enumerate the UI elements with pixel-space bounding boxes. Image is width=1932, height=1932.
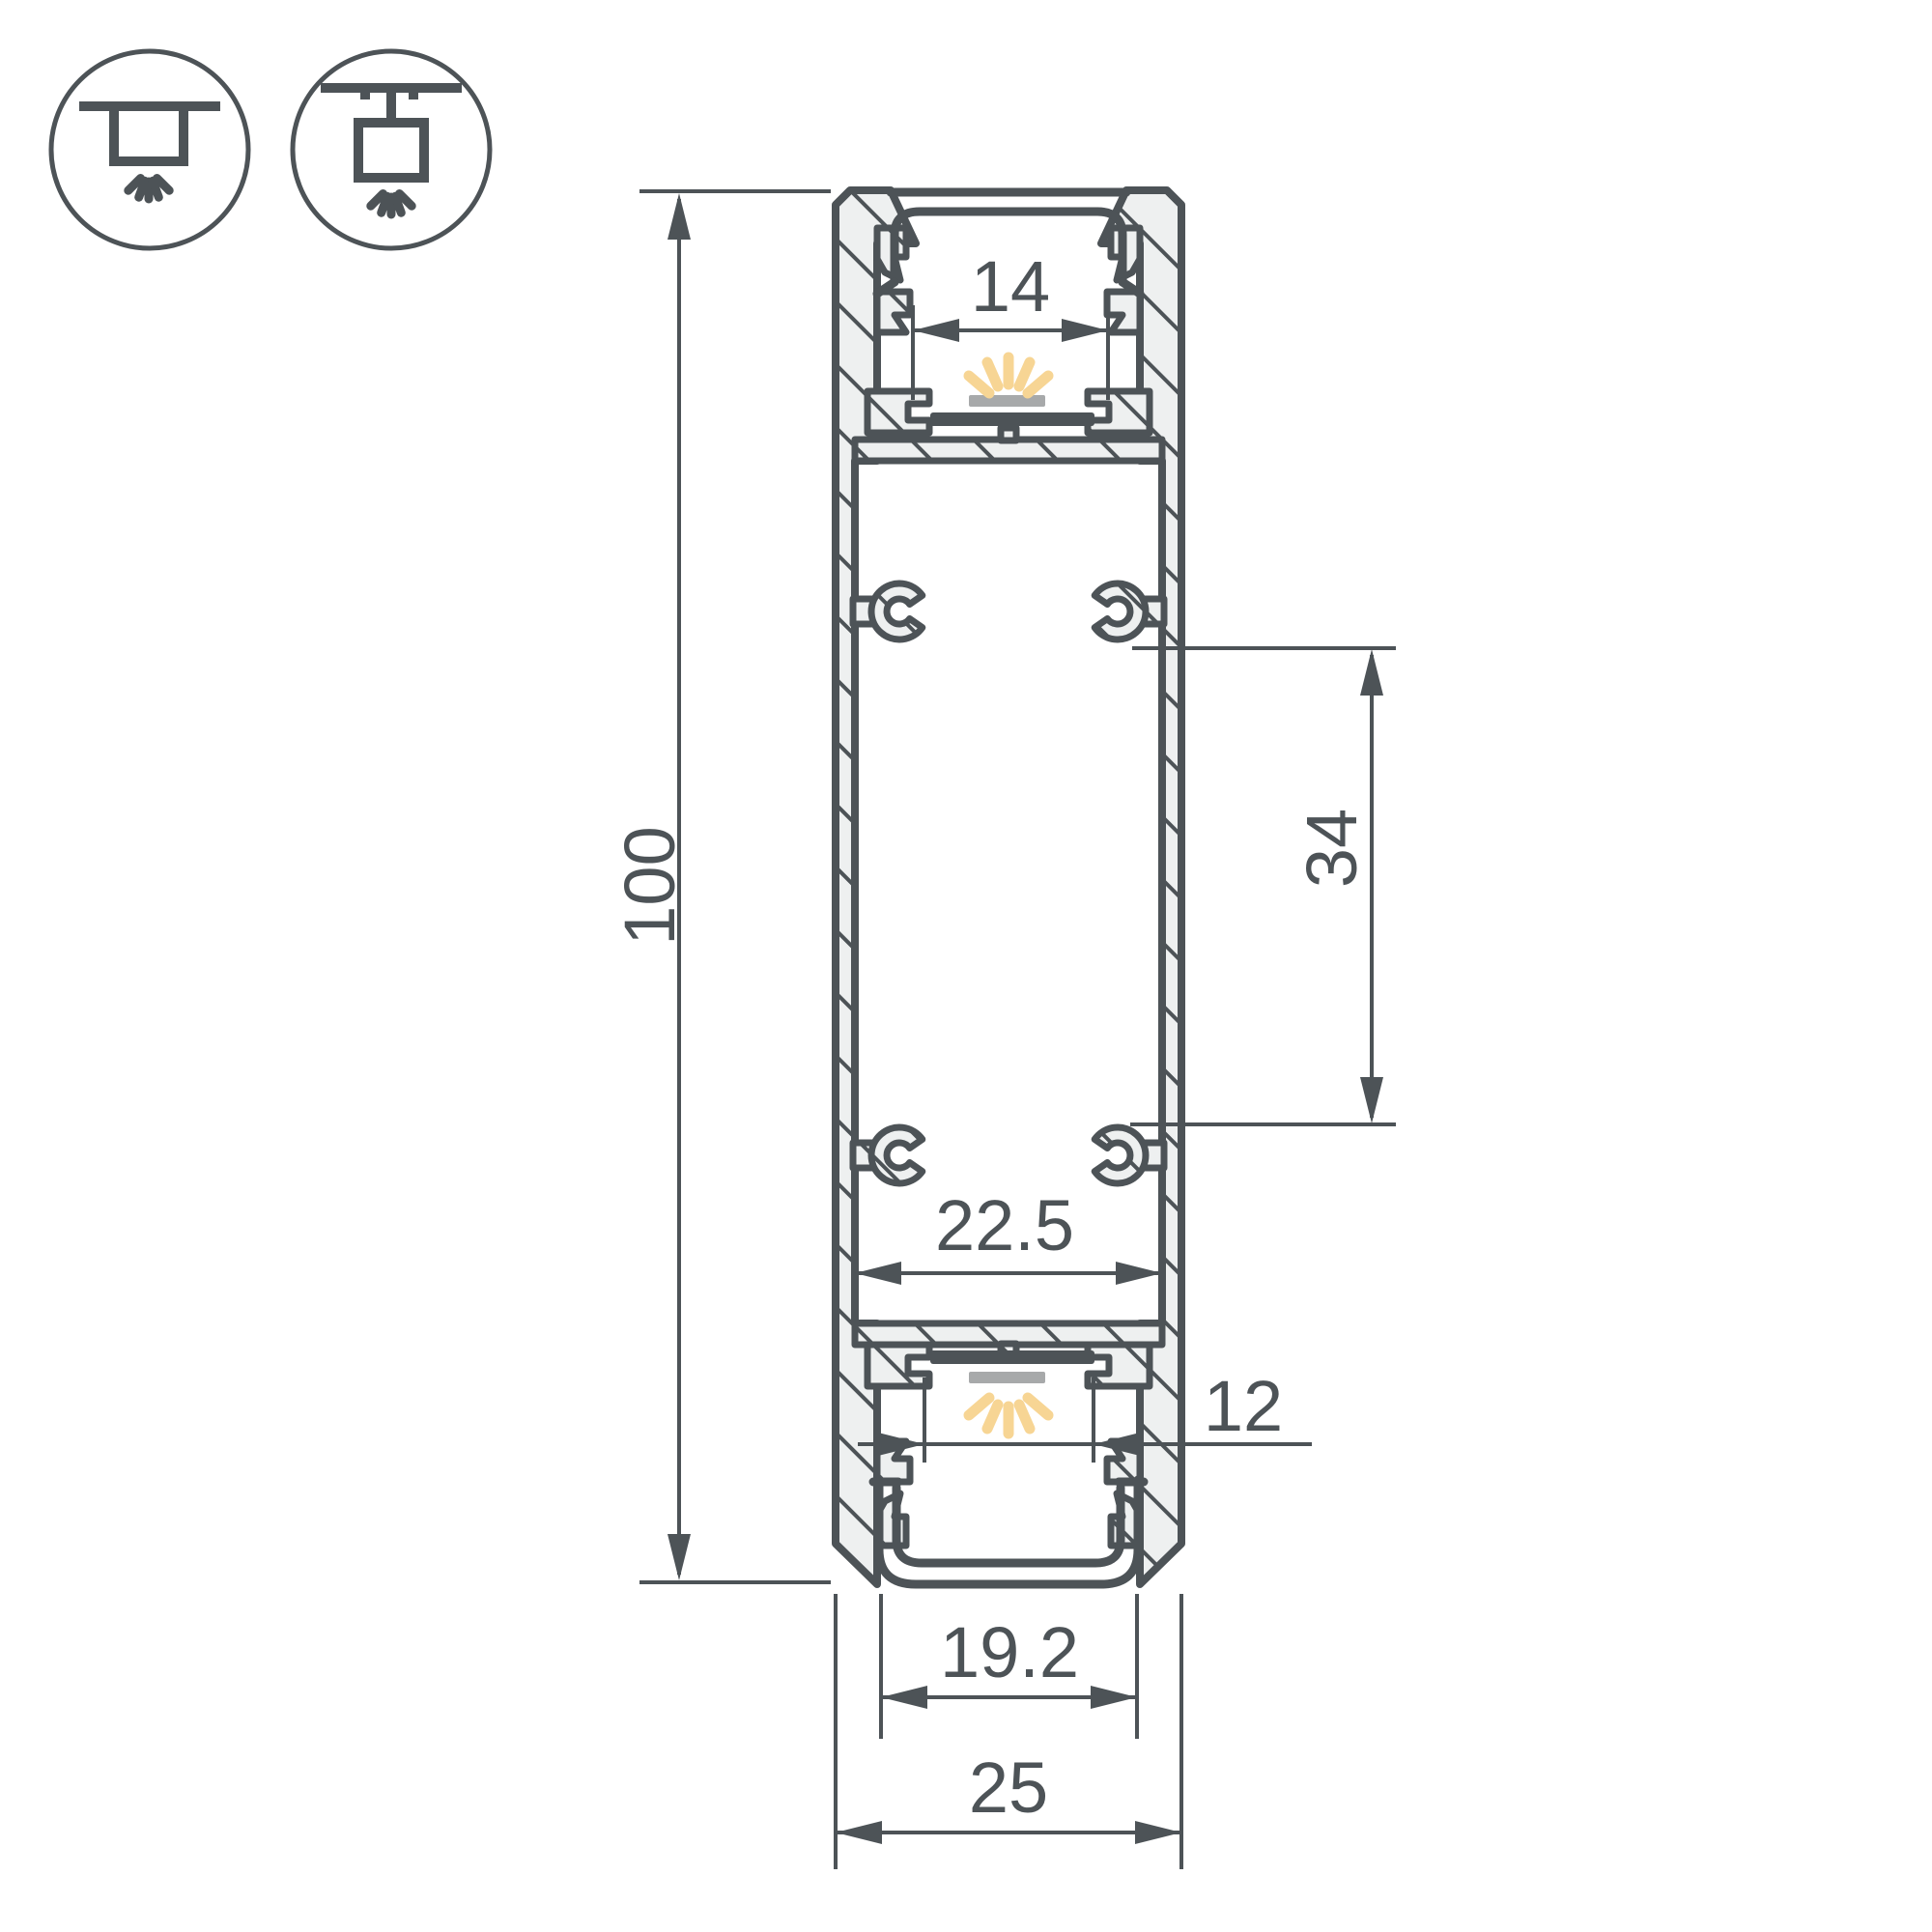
dim-label-top-window: 14 [971,246,1050,327]
screw-boss-top-left [871,583,923,639]
fixture-box [114,106,184,161]
glow-rays-up [969,357,1048,393]
dim-label-overall-height: 100 [610,826,690,945]
top-led-strip [930,357,1094,426]
light-rays [128,179,169,200]
drawing-canvas: 100 14 34 22.5 12 19.2 [0,0,1932,1932]
dim-label-bottom-window: 19.2 [940,1612,1079,1692]
bottom-diffuser-hooks [877,1441,1140,1546]
dim-label-inner-width: 22.5 [935,1185,1074,1265]
screw-boss-bottom-right [1094,1127,1146,1183]
profile-technical-drawing: 100 14 34 22.5 12 19.2 [0,0,1932,1932]
dim-label-strip-window: 12 [1204,1366,1283,1446]
profile-cross-section [836,190,1181,1584]
glow-rays-down [969,1398,1048,1434]
led-emitter [969,1372,1045,1383]
screw-boss-bottom-left [871,1127,923,1183]
screw-boss-top-right [1094,583,1146,639]
dim-label-mount-pitch: 34 [1292,809,1372,888]
screw-bosses [853,583,1164,1183]
dim-label-overall-width: 25 [969,1747,1048,1828]
mounting-legend [51,51,490,248]
led-pcb [930,1350,1094,1364]
light-rays [371,194,412,215]
surface-mount-icon [293,51,490,248]
fixture-box [358,123,424,178]
icon-circle [51,51,248,248]
dimension-inner-width: 22.5 [855,1185,1162,1285]
dimension-bottom-window: 19.2 [881,1594,1137,1739]
bottom-diffuser [873,1480,1144,1584]
recessed-mount-icon [51,51,248,248]
led-pcb [930,412,1094,426]
dimension-overall-height: 100 [610,191,831,1582]
bottom-led-strip [930,1350,1094,1434]
top-screw-nub [1001,428,1016,440]
led-emitter [969,395,1045,407]
